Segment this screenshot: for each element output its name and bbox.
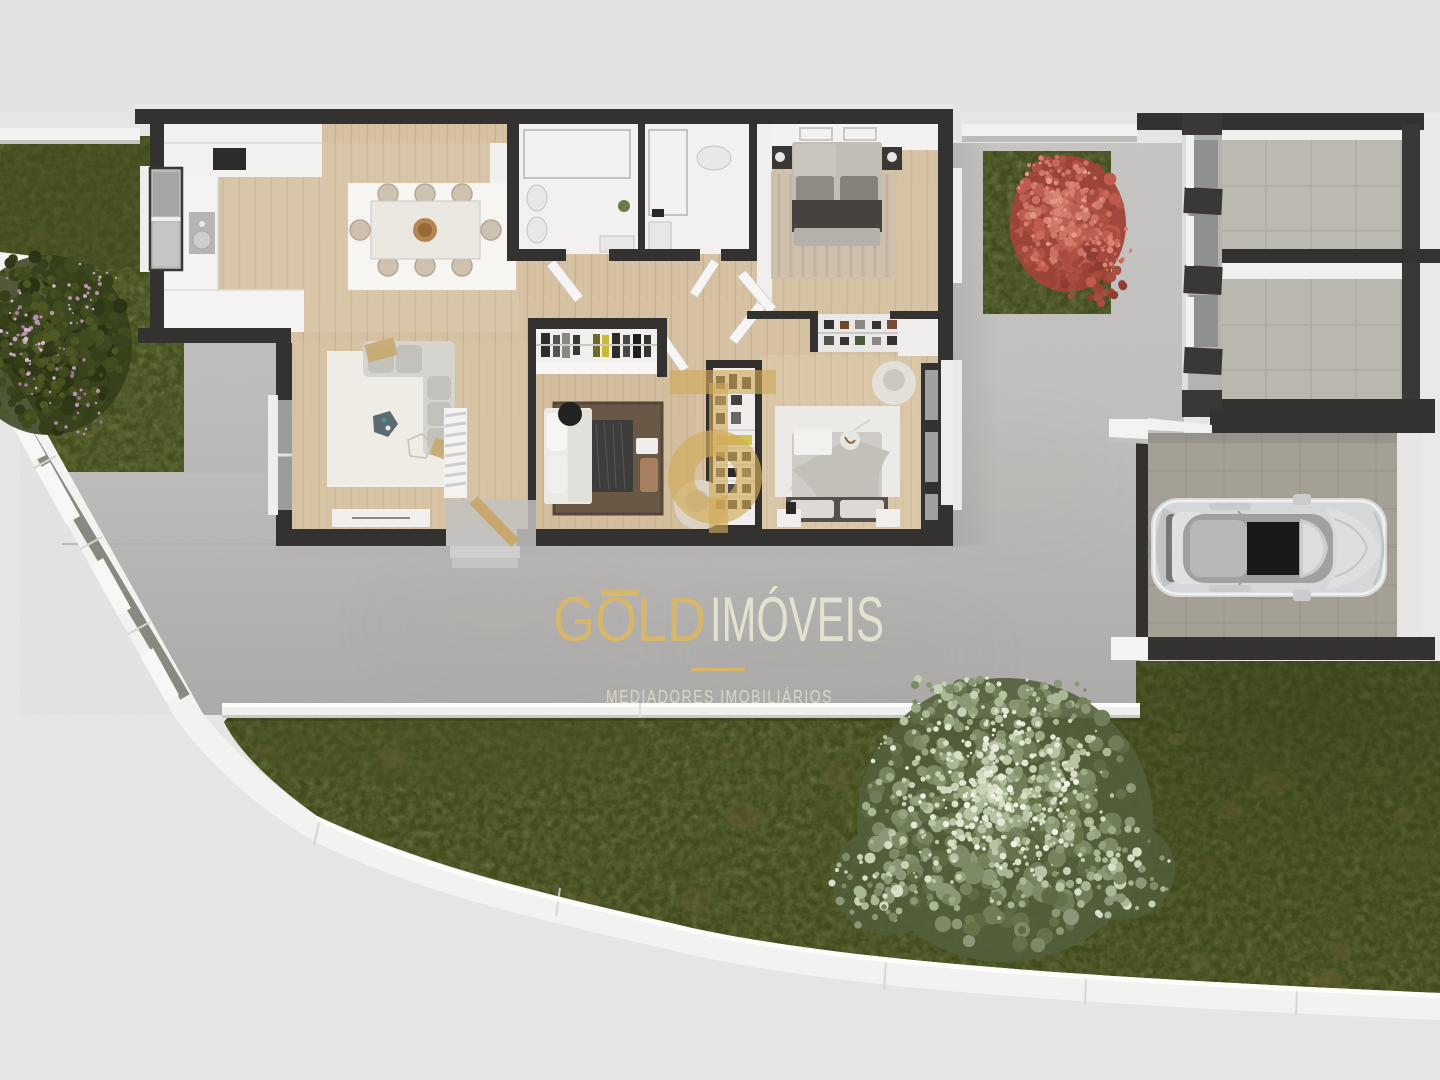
svg-text:MEDIADORES IMOBILIÁRIOS: MEDIADORES IMOBILIÁRIOS bbox=[606, 687, 833, 707]
svg-text:IMÓVEIS: IMÓVEIS bbox=[710, 585, 884, 655]
